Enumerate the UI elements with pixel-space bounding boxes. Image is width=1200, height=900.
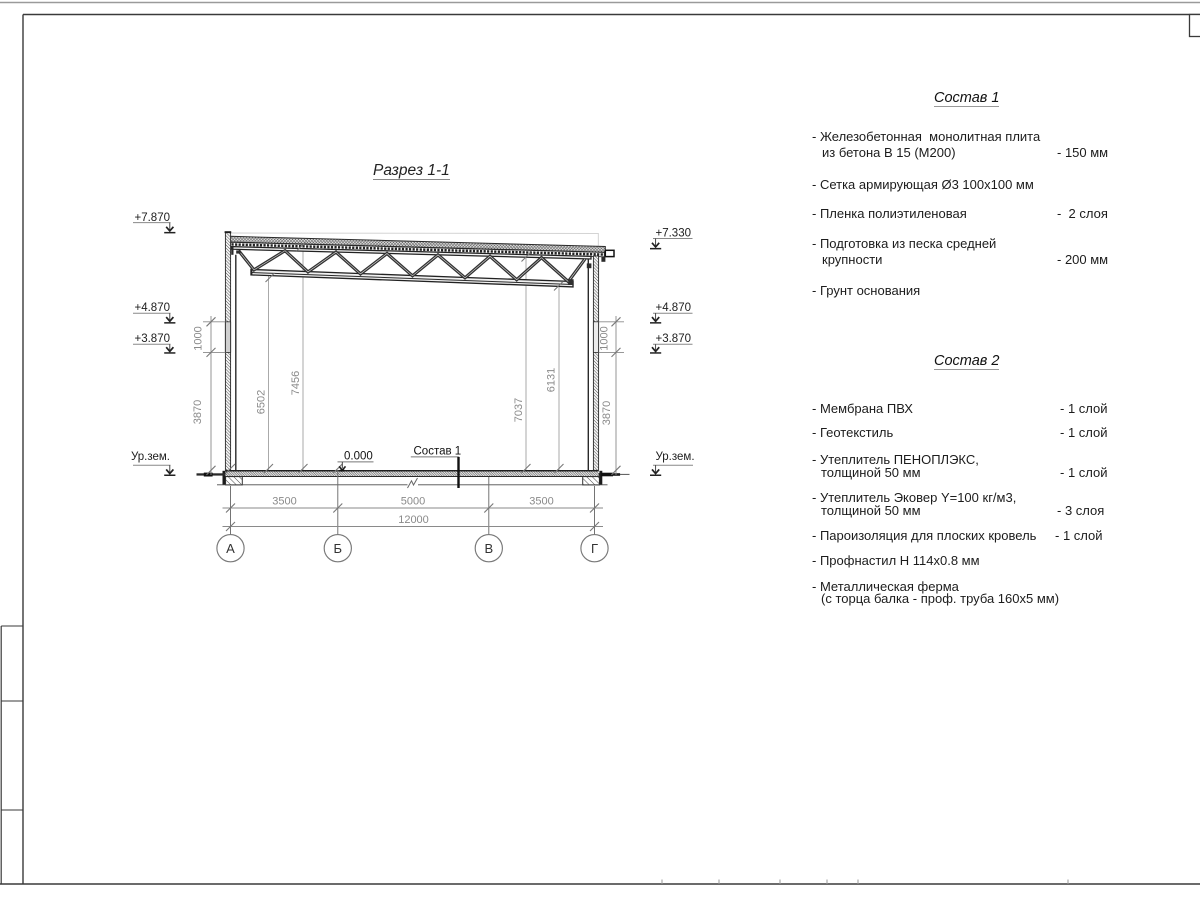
svg-text:+7.330: +7.330 — [656, 227, 692, 239]
svg-text:+3.870: +3.870 — [135, 333, 171, 345]
svg-text:Ур.зем.: Ур.зем. — [131, 451, 170, 463]
svg-text:Состав 1: Состав 1 — [414, 445, 462, 457]
svg-text:+4.870: +4.870 — [656, 302, 692, 314]
svg-text:+7.870: +7.870 — [135, 212, 171, 224]
svg-text:+4.870: +4.870 — [135, 302, 171, 314]
svg-text:+3.870: +3.870 — [656, 333, 692, 345]
svg-text:0.000: 0.000 — [344, 451, 373, 463]
svg-text:Ур.зем.: Ур.зем. — [656, 451, 695, 463]
